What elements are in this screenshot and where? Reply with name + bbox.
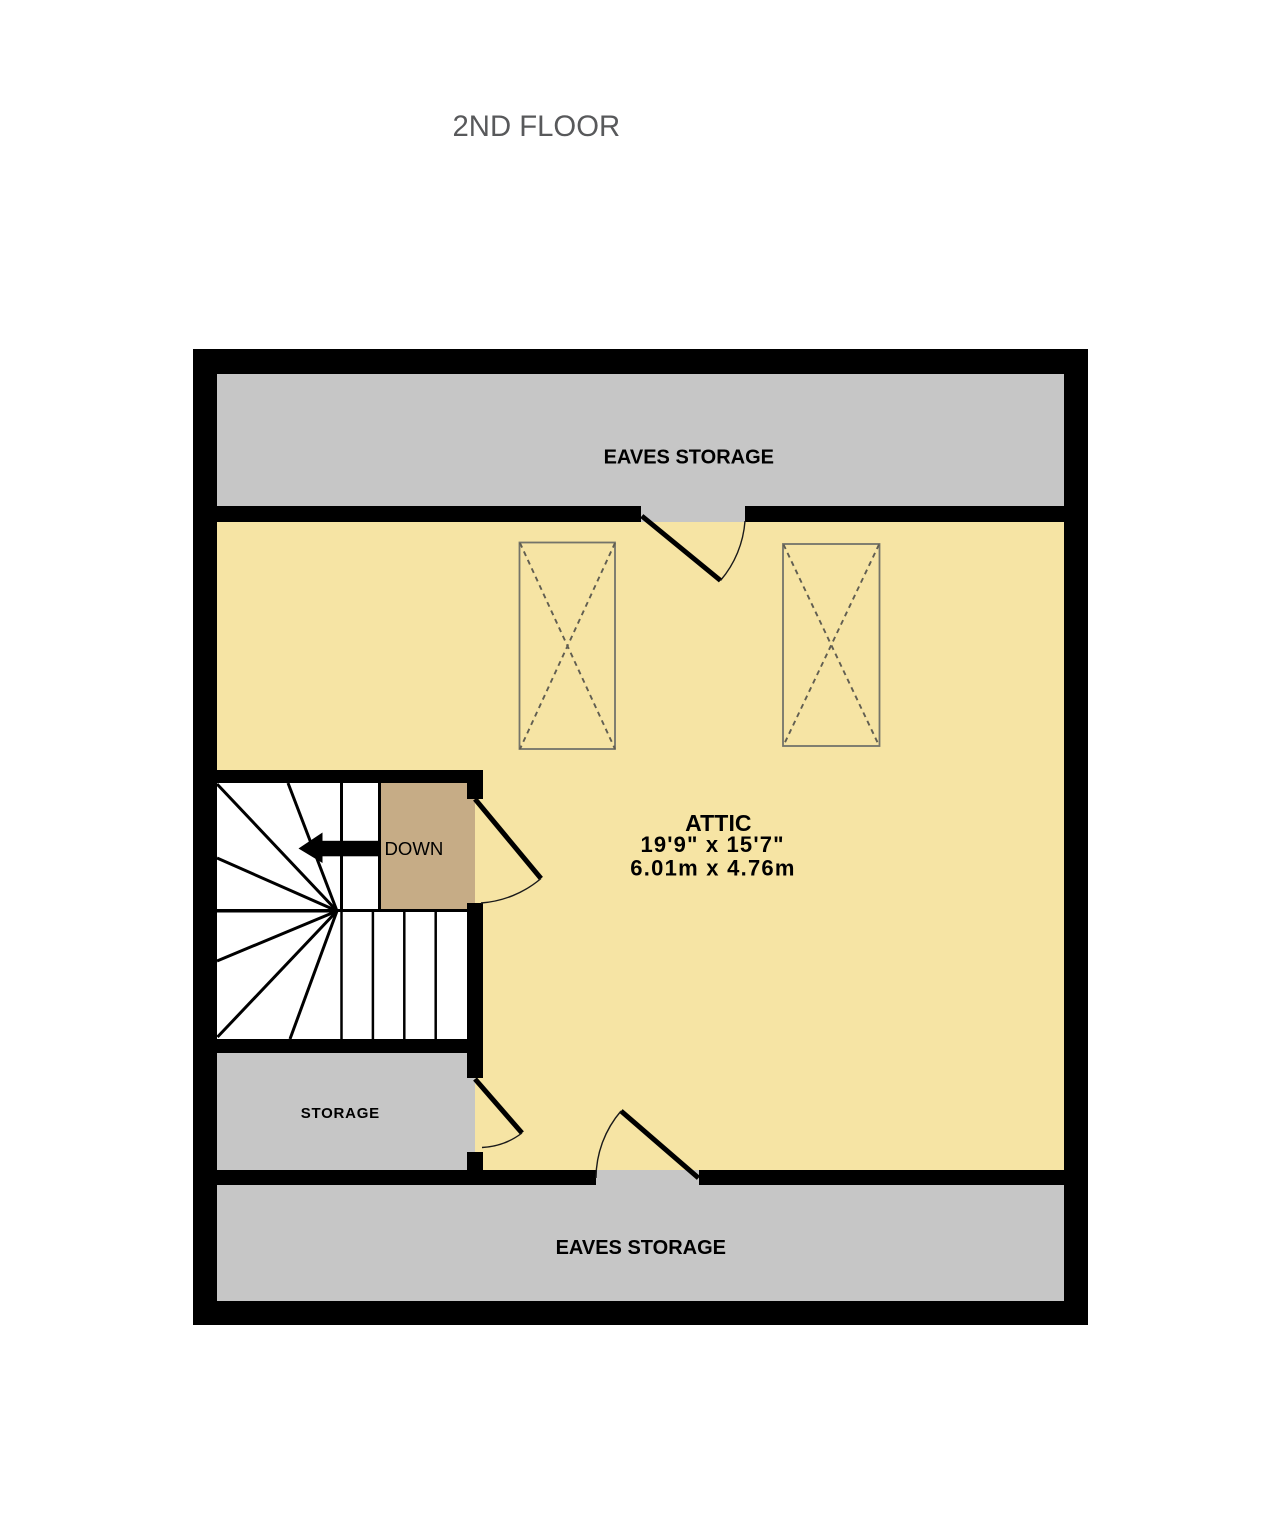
svg-text:EAVES STORAGE: EAVES STORAGE	[604, 446, 774, 468]
svg-text:EAVES STORAGE: EAVES STORAGE	[556, 1237, 726, 1259]
svg-text:DOWN: DOWN	[384, 838, 443, 859]
svg-text:19'9" x 15'7": 19'9" x 15'7"	[641, 832, 785, 857]
svg-text:STORAGE: STORAGE	[301, 1105, 380, 1122]
svg-text:6.01m x 4.76m: 6.01m x 4.76m	[630, 855, 795, 880]
svg-text:2ND FLOOR: 2ND FLOOR	[453, 110, 621, 143]
